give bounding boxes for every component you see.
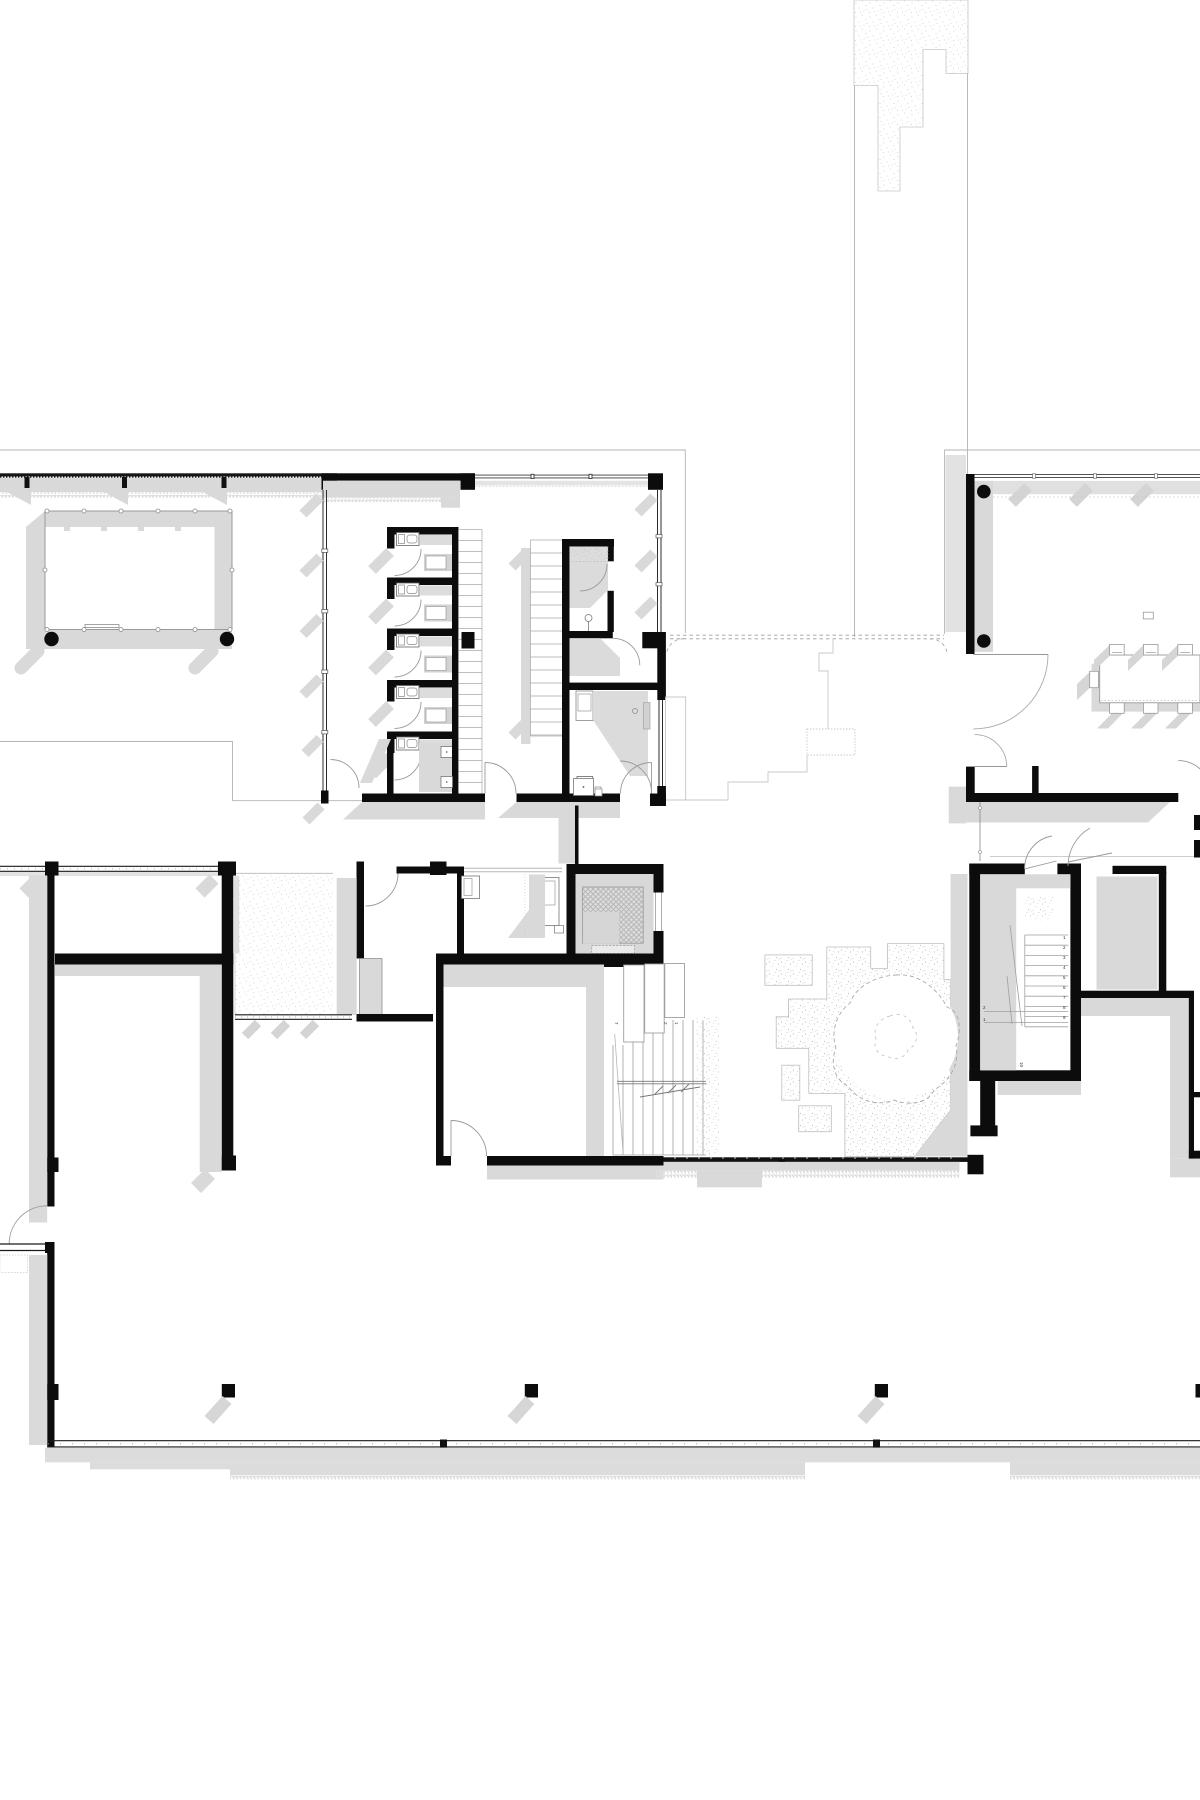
svg-text:10: 10 — [1019, 1062, 1024, 1068]
